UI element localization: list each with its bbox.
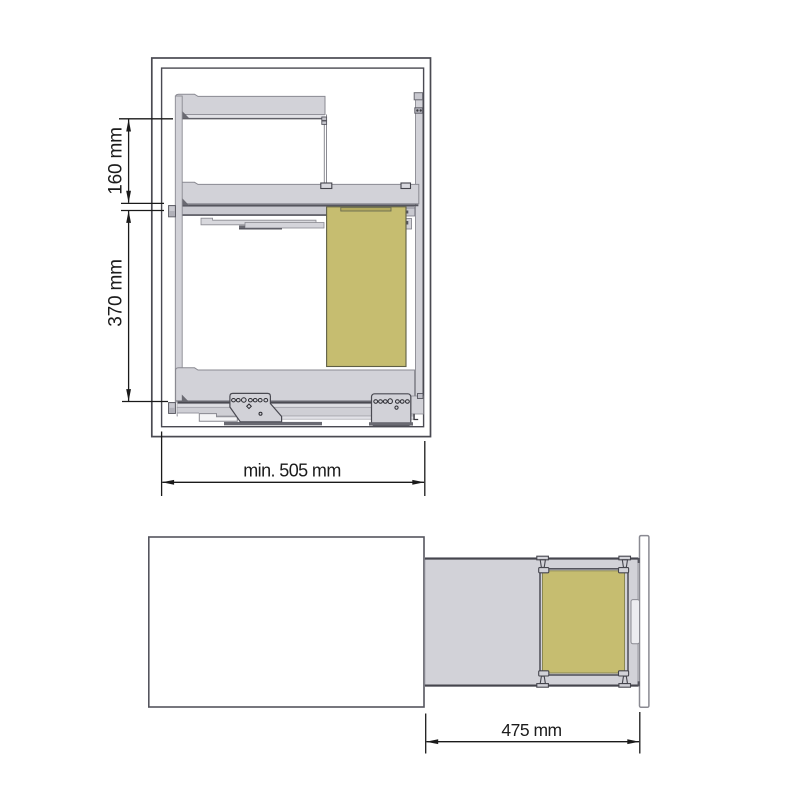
- svg-text:370 mm: 370 mm: [106, 259, 127, 326]
- svg-text:min. 505 mm: min. 505 mm: [243, 461, 340, 481]
- svg-text:160 mm: 160 mm: [106, 127, 127, 194]
- svg-text:475 mm: 475 mm: [501, 720, 561, 740]
